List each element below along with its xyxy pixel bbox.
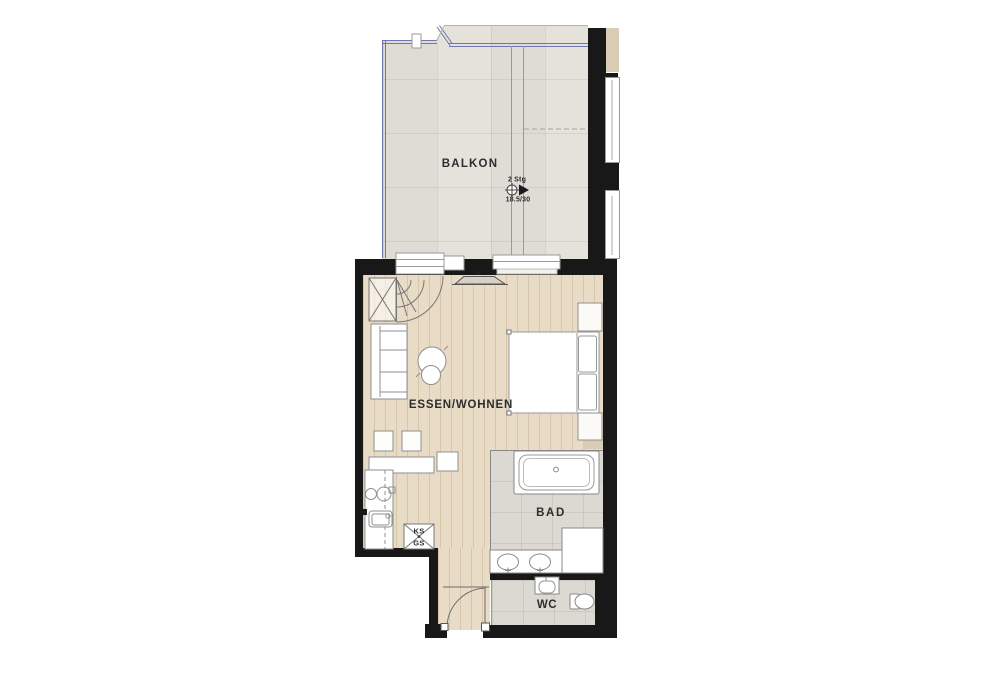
balcony-slab-edge xyxy=(437,26,589,42)
vanity-double-sink xyxy=(490,550,562,574)
side-table xyxy=(437,452,458,471)
nightstand-top xyxy=(578,303,602,331)
kitchen-wall-nub xyxy=(362,509,367,515)
bathtub xyxy=(514,451,599,494)
floor-plan-canvas: BALKON ESSEN/WOHNEN BAD WC 2 Stg 18.5/30… xyxy=(0,0,1000,676)
kitchen-counter xyxy=(365,470,395,549)
shower xyxy=(562,528,603,573)
sofa xyxy=(371,324,407,399)
nightstand-bottom xyxy=(578,413,602,440)
coffee-table xyxy=(416,346,448,385)
balcony-label: BALKON xyxy=(442,158,498,170)
step-dimension-label: 18.5/30 xyxy=(506,197,531,204)
furniture-linework xyxy=(0,0,1000,676)
dishwasher-label: GS xyxy=(413,539,424,548)
dining-chairs xyxy=(374,431,421,451)
entry-door xyxy=(441,587,490,631)
window-living-left xyxy=(396,253,464,274)
balcony-door-swing xyxy=(397,276,444,322)
balcony-railing xyxy=(382,26,588,259)
shaft-box xyxy=(369,278,396,321)
toilet xyxy=(570,594,594,609)
wc-washbasin xyxy=(535,577,559,595)
steps-count-label: 2 Stg xyxy=(508,177,526,184)
balcony-post xyxy=(412,34,421,48)
living-label: ESSEN/WOHNEN xyxy=(409,399,513,411)
wc-label: WC xyxy=(537,599,557,611)
fridge-label: KS xyxy=(413,527,424,536)
balcony-drain-channel xyxy=(512,46,524,255)
bed xyxy=(507,330,599,415)
step-marker xyxy=(505,183,529,197)
balcony-sliding-door xyxy=(493,255,560,274)
bath-label: BAD xyxy=(536,507,566,519)
